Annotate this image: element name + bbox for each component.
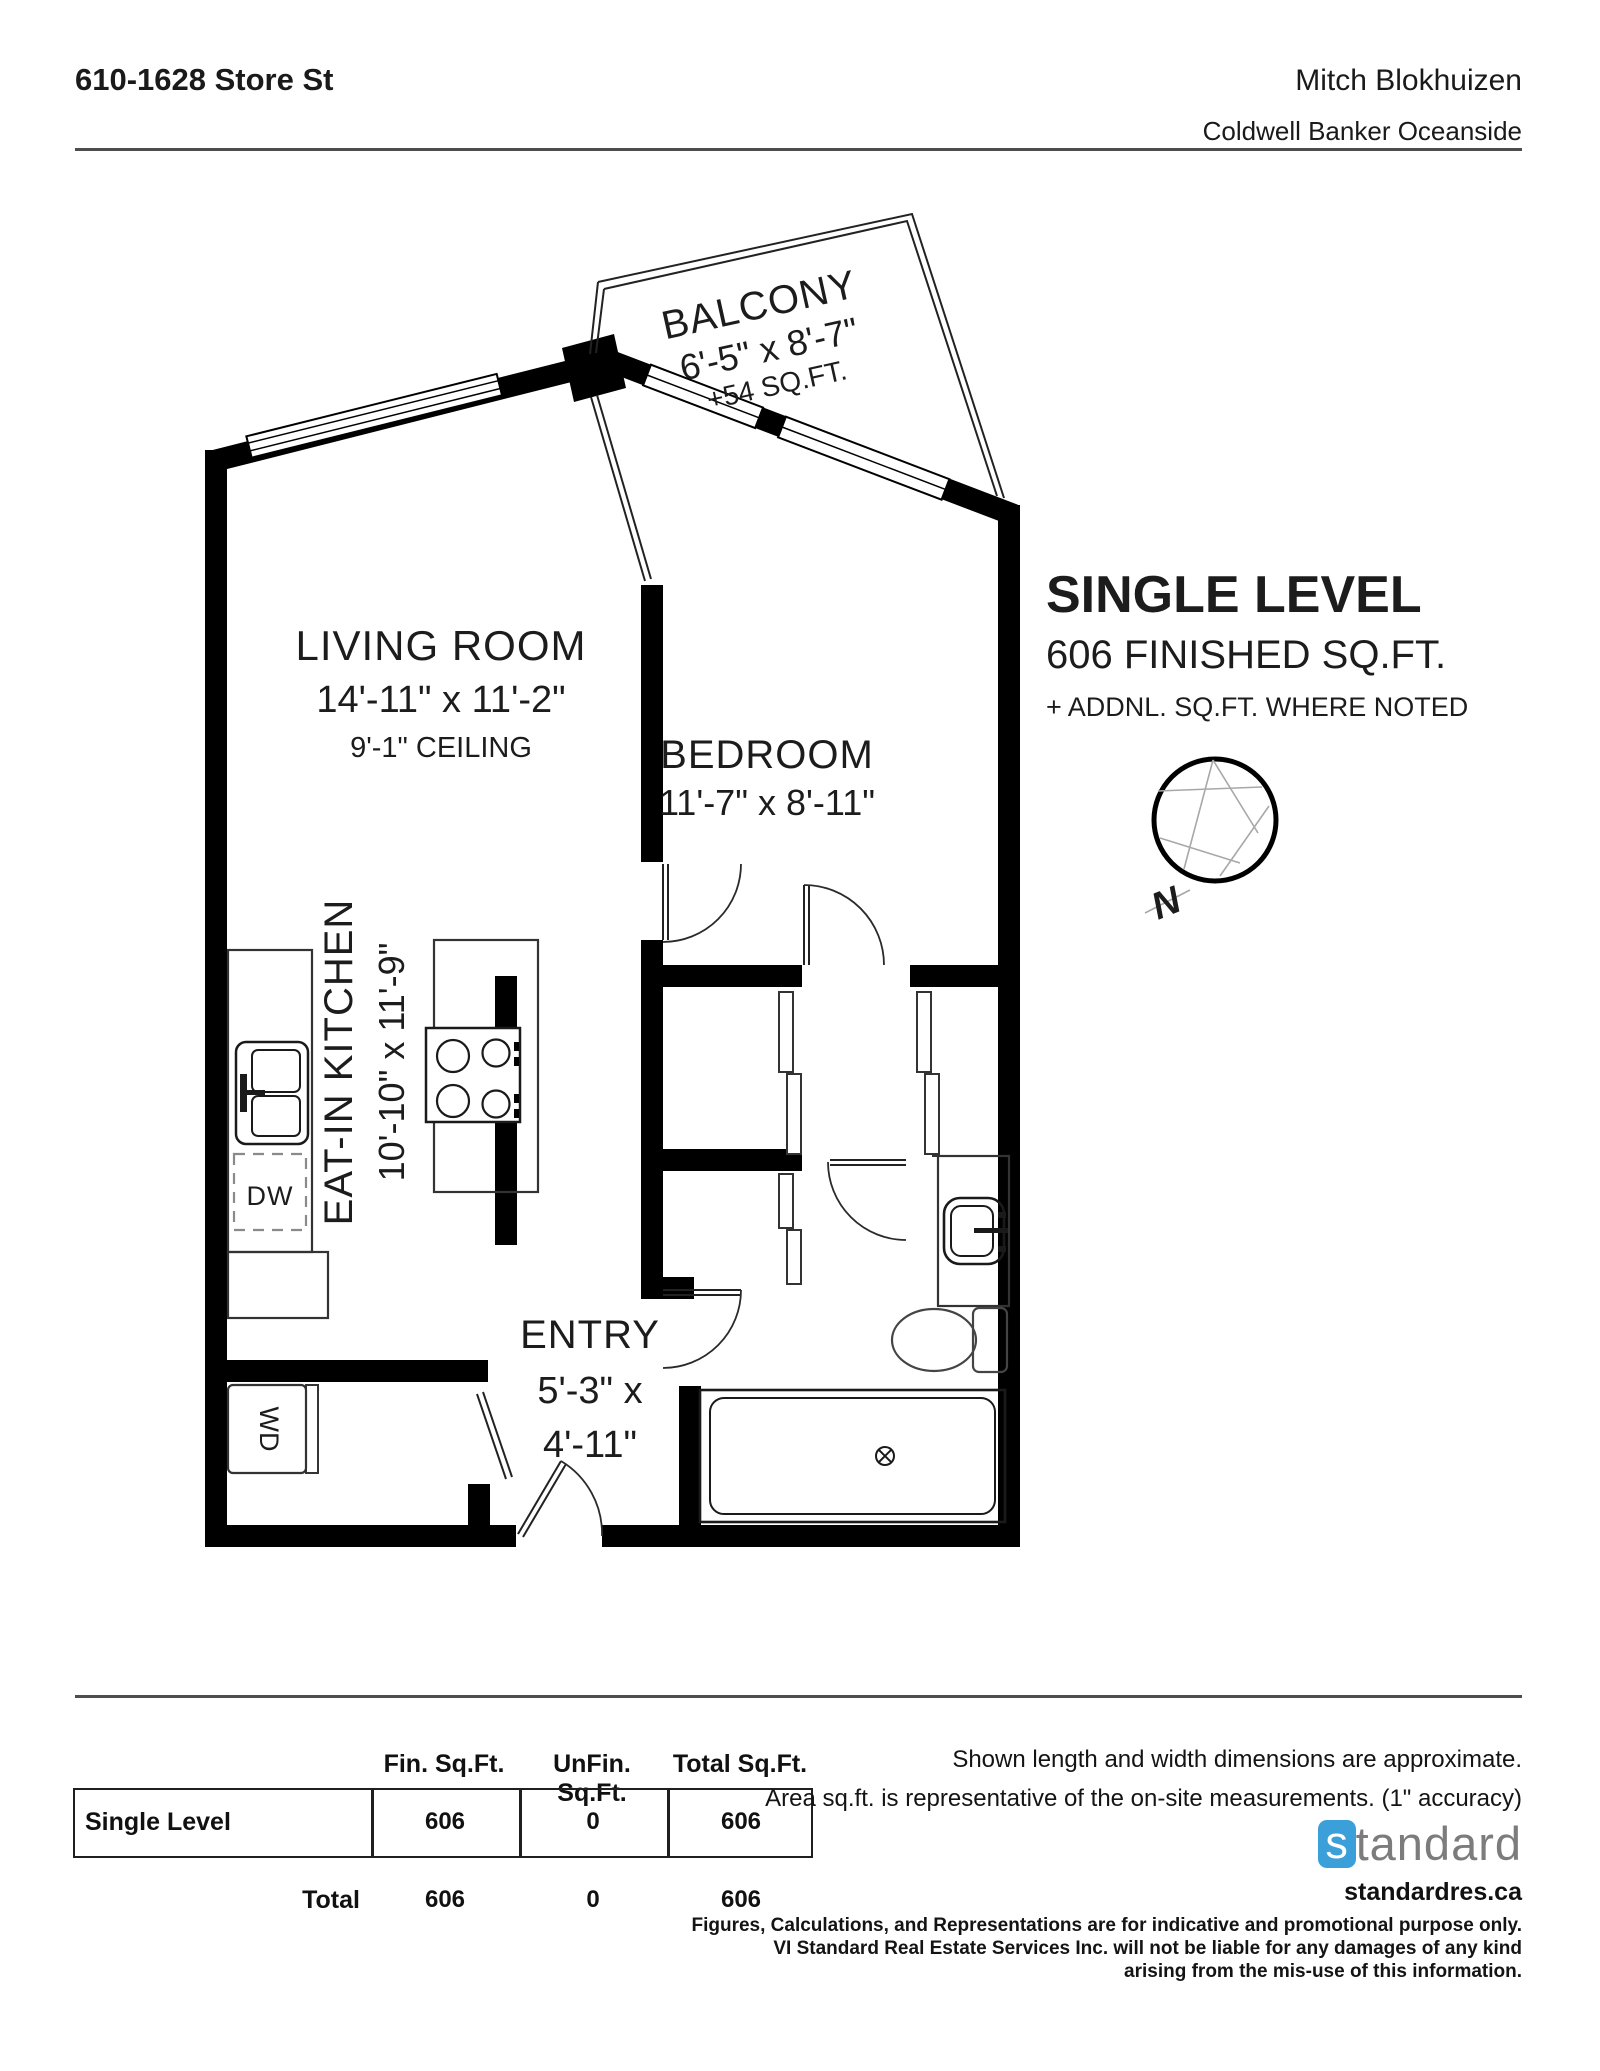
compass-north-label: N: [1146, 879, 1189, 929]
standard-logo: s tandard: [1318, 1820, 1522, 1868]
kitchen-dims: 10'-10" x 11'-9": [371, 943, 412, 1182]
balcony-corner-wall: [562, 334, 626, 402]
cooktop-icon: [426, 1028, 520, 1122]
level-subtitle: 606 FINISHED SQ.FT.: [1046, 633, 1446, 677]
toilet-icon: [892, 1308, 1007, 1372]
kitchen-label: EAT-IN KITCHEN 10'-10" x 11'-9": [317, 899, 412, 1226]
website-link[interactable]: standardres.ca: [1344, 1878, 1522, 1907]
disclaimer-line-2: VI Standard Real Estate Services Inc. wi…: [691, 1937, 1522, 1960]
living-room-dims: 14'-11" x 11'-2": [316, 679, 565, 721]
bedroom-dims: 11'-7" x 8'-11": [659, 782, 875, 823]
table-total-total: 606: [667, 1886, 815, 1914]
living-room-name: LIVING ROOM: [295, 622, 586, 669]
floorplan-page: 610-1628 Store St Mitch Blokhuizen Coldw…: [0, 0, 1600, 2071]
table-total-fin: 606: [371, 1886, 519, 1914]
washer-dryer-label: WD: [254, 1407, 284, 1452]
entry-dims-line2: 4'-11": [543, 1424, 637, 1466]
closet-sliding-doors: [779, 992, 939, 1284]
living-room-ceiling: 9'-1" CEILING: [350, 732, 532, 764]
entry-label: ENTRY 5'-3" x 4'-11": [520, 1313, 660, 1466]
dishwasher-box: DW: [234, 1154, 306, 1230]
kitchen-sink-icon: [236, 1042, 308, 1144]
footer-divider: [75, 1695, 1522, 1698]
bedroom-label: BEDROOM 11'-7" x 8'-11": [659, 733, 875, 823]
kitchen-name: EAT-IN KITCHEN: [317, 899, 361, 1226]
washer-dryer-icon: WD: [228, 1385, 318, 1473]
logo-wordmark: tandard: [1356, 1820, 1522, 1868]
entry-dims-line1: 5'-3" x: [537, 1370, 642, 1412]
note-line-1: Shown length and width dimensions are ap…: [765, 1740, 1522, 1779]
dishwasher-label: DW: [247, 1181, 294, 1211]
living-room-window: [246, 374, 502, 458]
level-note: + ADDNL. SQ.FT. WHERE NOTED: [1046, 692, 1468, 722]
disclaimer-line-1: Figures, Calculations, and Representatio…: [691, 1914, 1522, 1937]
balcony-window-right: [778, 417, 949, 500]
table-total-unfin: 0: [519, 1886, 667, 1914]
table-row-label: Single Level: [85, 1808, 231, 1837]
table-total-label: Total: [220, 1886, 360, 1915]
floorplan-drawing: DW WD: [0, 0, 1600, 1660]
disclaimer-line-3: arising from the mis-use of this informa…: [691, 1960, 1522, 1983]
note-line-2: Area sq.ft. is representative of the on-…: [765, 1779, 1522, 1818]
logo-s-icon: s: [1318, 1820, 1356, 1868]
compass-icon: N: [1145, 759, 1276, 928]
entry-name: ENTRY: [520, 1313, 660, 1357]
measurement-notes: Shown length and width dimensions are ap…: [765, 1740, 1522, 1818]
level-title: SINGLE LEVEL: [1046, 566, 1422, 624]
table-cell-unfin: 0: [519, 1808, 667, 1836]
bedroom-name: BEDROOM: [660, 733, 874, 777]
table-cell-fin: 606: [371, 1808, 519, 1836]
shower-tub-icon: [700, 1390, 1005, 1522]
level-summary: SINGLE LEVEL 606 FINISHED SQ.FT. + ADDNL…: [1046, 566, 1468, 722]
table-header-fin: Fin. Sq.Ft.: [369, 1750, 519, 1779]
living-room-label: LIVING ROOM 14'-11" x 11'-2" 9'-1" CEILI…: [295, 622, 586, 764]
legal-disclaimer: Figures, Calculations, and Representatio…: [691, 1914, 1522, 1983]
